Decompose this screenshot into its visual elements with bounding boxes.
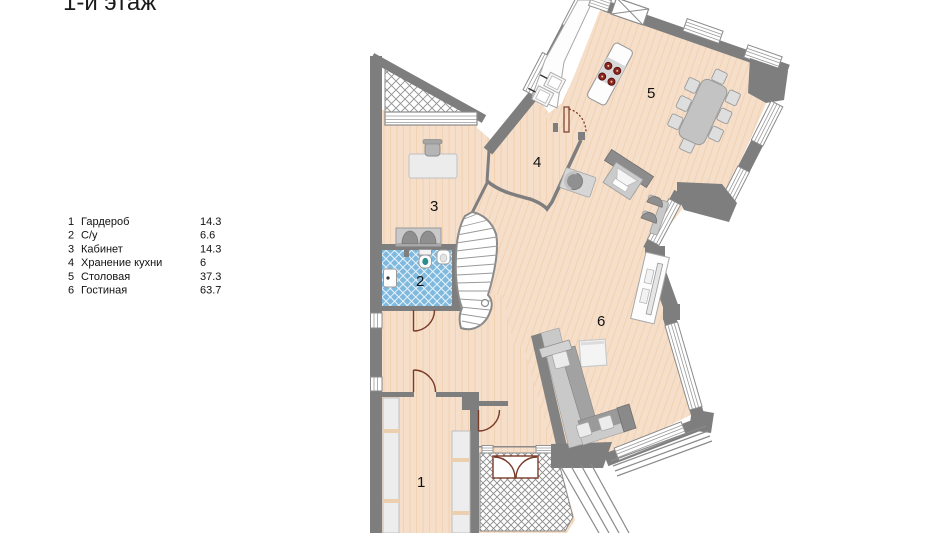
svg-text:6: 6: [68, 285, 74, 297]
svg-text:Столовая: Столовая: [81, 271, 130, 283]
svg-text:Гардероб: Гардероб: [81, 216, 129, 228]
svg-text:5: 5: [647, 85, 655, 102]
svg-text:1: 1: [68, 216, 74, 228]
svg-text:2: 2: [68, 230, 74, 242]
svg-text:14.3: 14.3: [200, 216, 221, 228]
svg-text:4: 4: [533, 154, 541, 171]
svg-text:5: 5: [68, 271, 74, 283]
svg-text:6: 6: [200, 257, 206, 269]
svg-text:3: 3: [68, 243, 74, 255]
svg-text:63.7: 63.7: [200, 285, 221, 297]
svg-text:6: 6: [597, 313, 605, 330]
svg-text:1-й этаж: 1-й этаж: [63, 0, 156, 16]
svg-text:14.3: 14.3: [200, 243, 221, 255]
svg-text:3: 3: [430, 198, 438, 215]
svg-text:4: 4: [68, 257, 74, 269]
svg-text:С/у: С/у: [81, 230, 98, 242]
svg-text:37.3: 37.3: [200, 271, 221, 283]
svg-text:Хранение кухни: Хранение кухни: [81, 257, 162, 269]
svg-text:Гостиная: Гостиная: [81, 285, 127, 297]
svg-text:2: 2: [416, 273, 424, 290]
svg-text:Кабинет: Кабинет: [81, 243, 123, 255]
svg-text:1: 1: [417, 474, 425, 491]
svg-text:6.6: 6.6: [200, 230, 215, 242]
